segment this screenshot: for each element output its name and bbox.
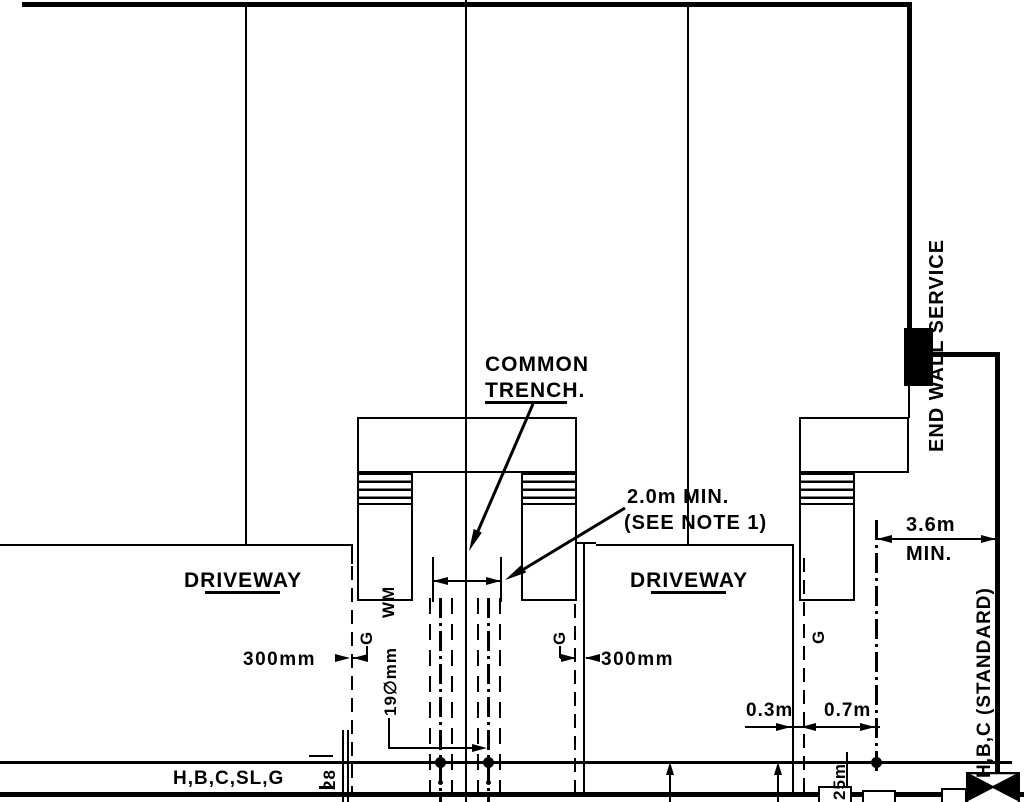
service-connection-3 [871, 757, 882, 768]
ground-step-left [351, 544, 353, 564]
gas-middle-label: G [551, 631, 568, 645]
service-dot-2 [486, 780, 491, 785]
up-arrow-1-stem [669, 773, 671, 802]
service-connection-1 [435, 757, 446, 768]
dim-arrow-right-icon [486, 577, 501, 585]
service-strip-line [0, 761, 1012, 764]
driveway-edge-right [792, 544, 794, 795]
driveway-right-underline [651, 591, 726, 594]
gas-right-label: G [810, 630, 827, 644]
offset-07-label: 0.7m [824, 701, 871, 720]
service-edge-line-1b [451, 598, 453, 802]
ground-ledge-middle [575, 542, 596, 544]
driveway-left-label: DRIVEWAY [184, 570, 302, 591]
gas-leader-arrow-left-icon [353, 654, 368, 662]
water-leader-horizontal [388, 747, 474, 749]
driveway-edge-middle [583, 544, 585, 795]
end-setback-label: 3.6m [906, 515, 956, 535]
water-size-label: 19∅mm [382, 647, 399, 716]
central-building-upper [357, 417, 577, 473]
dim-28-label: 28 [321, 769, 338, 790]
bottom-box-2 [862, 790, 896, 802]
dim-arrow-07b-icon [860, 723, 875, 731]
dim-28-ext-b [347, 730, 349, 802]
gas-left-label: G [358, 631, 375, 645]
central-building-wing-right [521, 505, 577, 601]
driveway-right-label: DRIVEWAY [630, 570, 748, 591]
dim-arrow-left-icon [433, 577, 448, 585]
ground-line-right [596, 544, 793, 546]
end-wall-service-label: END WALL SERVICE [927, 239, 947, 452]
common-trench-underline [485, 401, 567, 404]
offset-left-arrow-icon [335, 654, 350, 662]
common-trench-label-line2: TRENCH. [485, 380, 585, 401]
end-wall-line [907, 2, 912, 330]
service-center-line-end-unit [875, 520, 878, 775]
end-setback-min-label: MIN. [906, 544, 952, 564]
service-center-line-1 [439, 598, 442, 802]
trench-width-note: 2.0m MIN. [627, 487, 729, 507]
property-line-2 [465, 0, 467, 802]
offset-03-label: 0.3m [746, 701, 793, 720]
dim-arrow-03-icon [776, 723, 791, 731]
end-building-step [799, 473, 855, 505]
service-edge-line-1a [429, 598, 431, 802]
gas-leader-arrow-middle-icon [561, 654, 576, 662]
service-edge-line-2a [477, 598, 479, 802]
top-boundary-line [22, 2, 912, 7]
service-connection-2 [483, 757, 494, 768]
dim-arrow-36b-icon [981, 535, 996, 543]
water-main-label: WM [380, 586, 397, 618]
bottom-box-3 [941, 788, 967, 802]
common-trench-label-line1: COMMON [485, 354, 589, 375]
ground-line-left [0, 544, 352, 546]
street-services-label: H,B,C,SL,G [173, 769, 284, 788]
dim-arrow-07a-icon [801, 723, 816, 731]
dim-28-tick [309, 755, 333, 757]
site-plan-canvas: COMMON TRENCH. 2.0m MIN. (SEE NOTE 1) DR… [0, 0, 1024, 802]
dim-arrow-36a-icon [877, 535, 892, 543]
property-line-3 [687, 2, 689, 545]
central-building-step-right [521, 473, 577, 505]
central-building-step-left [357, 473, 413, 505]
water-leader-arrow-icon [472, 744, 487, 752]
offset-middle-label: 300mm [601, 650, 674, 669]
dim-28-ext-a [342, 730, 344, 802]
water-leader-vertical [388, 718, 390, 749]
service-center-line-2 [487, 598, 490, 802]
offset-middle-arrow-shaft [586, 657, 599, 659]
service-edge-line-2b [499, 598, 501, 802]
up-arrow-2-stem [777, 773, 779, 802]
trench-width-note2: (SEE NOTE 1) [624, 513, 767, 533]
service-dot-1 [438, 780, 443, 785]
end-wall-line-lower [908, 386, 910, 418]
end-building-upper [799, 417, 909, 473]
property-line-1 [245, 2, 247, 545]
gas-line-middle [574, 604, 576, 795]
gas-line-right [803, 558, 805, 795]
offset-left-label: 300mm [243, 650, 316, 669]
service-riser-vertical [995, 352, 1000, 783]
dim-line-end-setback [877, 538, 996, 540]
end-building-wing [799, 505, 855, 601]
driveway-left-underline [205, 591, 280, 594]
standard-service-label: H,B,C (STANDARD) [975, 587, 994, 778]
dim-25m-label: 25m [831, 763, 848, 800]
